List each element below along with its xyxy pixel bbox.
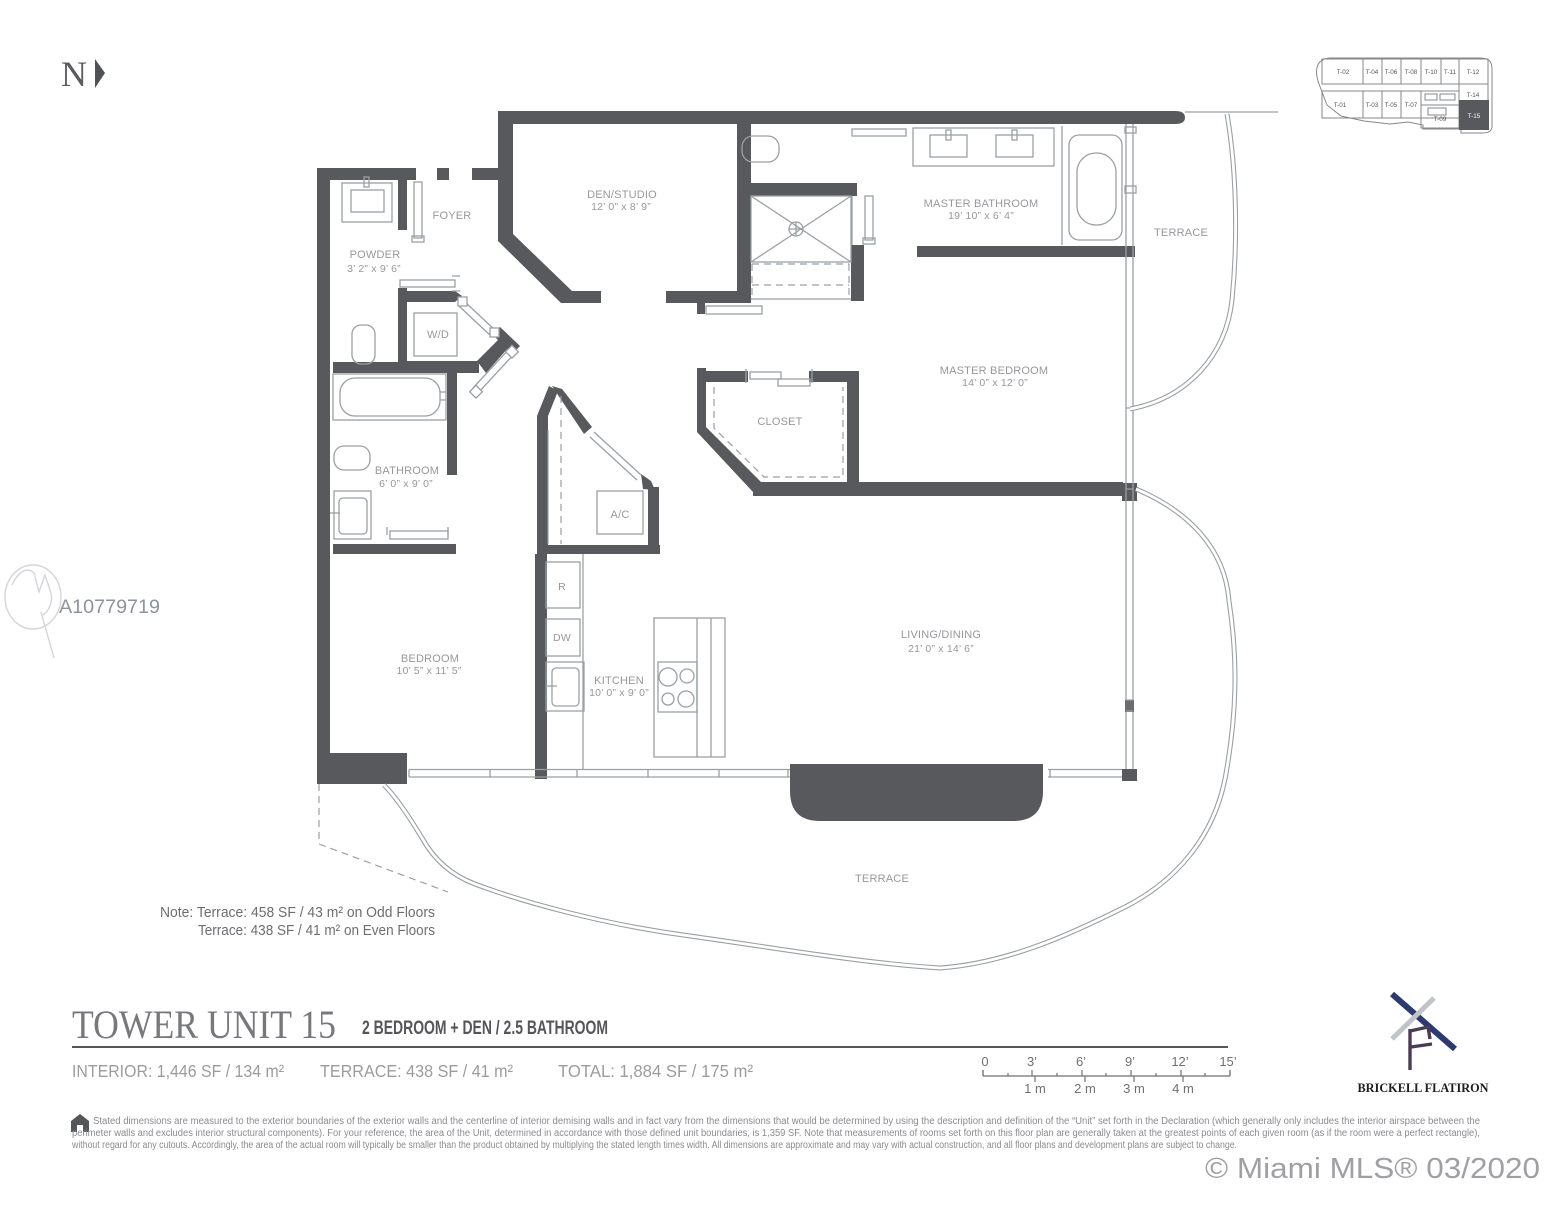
svg-text:T-04: T-04 xyxy=(1366,69,1379,76)
svg-text:T-07: T-07 xyxy=(1405,102,1418,109)
svg-text:T-03: T-03 xyxy=(1366,102,1379,109)
svg-text:6’ 0” x 9’ 0”: 6’ 0” x 9’ 0” xyxy=(379,478,433,490)
svg-text:T-08: T-08 xyxy=(1405,69,1418,76)
svg-text:3’: 3’ xyxy=(1027,1054,1037,1069)
svg-text:R: R xyxy=(558,581,566,593)
svg-text:T-02: T-02 xyxy=(1337,69,1350,76)
svg-text:3 m: 3 m xyxy=(1123,1081,1145,1096)
svg-text:T-15: T-15 xyxy=(1468,113,1481,120)
svg-text:T-01: T-01 xyxy=(1334,102,1347,109)
svg-text:15’: 15’ xyxy=(1219,1054,1236,1069)
svg-text:Stated dimensions are measured: Stated dimensions are measured to the ex… xyxy=(93,1116,1480,1127)
svg-text:6’: 6’ xyxy=(1076,1054,1086,1069)
svg-text:KITCHEN: KITCHEN xyxy=(594,675,644,687)
svg-text:A10779719: A10779719 xyxy=(59,597,160,618)
svg-text:TERRACE: TERRACE xyxy=(1154,227,1208,239)
svg-text:Terrace: 438 SF / 41 m² on Ev: Terrace: 438 SF / 41 m² on Even Floors xyxy=(198,922,435,939)
svg-text:TOTAL: 1,884 SF / 175 m²: TOTAL: 1,884 SF / 175 m² xyxy=(558,1061,753,1081)
svg-text:19’ 10” x 6’ 4”: 19’ 10” x 6’ 4” xyxy=(948,210,1014,222)
svg-text:14’ 0” x 12’ 0”: 14’ 0” x 12’ 0” xyxy=(962,377,1028,389)
svg-text:INTERIOR: 1,446 SF / 134 m²: INTERIOR: 1,446 SF / 134 m² xyxy=(72,1061,284,1081)
svg-text:T-09: T-09 xyxy=(1434,116,1447,123)
svg-text:T-05: T-05 xyxy=(1385,102,1398,109)
svg-text:BRICKELL FLATIRON: BRICKELL FLATIRON xyxy=(1358,1080,1490,1095)
svg-text:© Miami MLS® 03/2020: © Miami MLS® 03/2020 xyxy=(1205,1153,1540,1185)
svg-text:12’: 12’ xyxy=(1171,1054,1188,1069)
svg-text:A/C: A/C xyxy=(611,509,630,521)
svg-text:DEN/STUDIO: DEN/STUDIO xyxy=(587,189,657,201)
svg-text:9’: 9’ xyxy=(1125,1054,1135,1069)
svg-text:LIVING/DINING: LIVING/DINING xyxy=(901,629,981,641)
svg-text:MASTER BEDROOM: MASTER BEDROOM xyxy=(940,365,1049,377)
svg-text:3’ 2” x 9’ 6”: 3’ 2” x 9’ 6” xyxy=(347,263,401,275)
svg-text:BEDROOM: BEDROOM xyxy=(401,653,459,665)
svg-text:BATHROOM: BATHROOM xyxy=(375,465,439,477)
svg-text:1 m: 1 m xyxy=(1024,1081,1046,1096)
svg-text:21’ 0” x 14’ 6”: 21’ 0” x 14’ 6” xyxy=(908,643,974,655)
svg-text:POWDER: POWDER xyxy=(350,249,401,261)
svg-text:FOYER: FOYER xyxy=(433,210,472,222)
svg-text:CLOSET: CLOSET xyxy=(757,416,802,428)
svg-text:10’ 0” x 9’ 0”: 10’ 0” x 9’ 0” xyxy=(589,687,649,699)
svg-text:T-11: T-11 xyxy=(1444,69,1457,76)
svg-text:T-14: T-14 xyxy=(1467,92,1480,99)
svg-text:12’ 0” x 8’ 9”: 12’ 0” x 8’ 9” xyxy=(591,201,651,213)
svg-text:TERRACE: 438 SF / 41 m²: TERRACE: 438 SF / 41 m² xyxy=(320,1061,513,1081)
svg-text:TERRACE: TERRACE xyxy=(855,873,909,885)
svg-text:T-12: T-12 xyxy=(1467,69,1480,76)
svg-text:T-06: T-06 xyxy=(1385,69,1398,76)
svg-text:0: 0 xyxy=(981,1054,988,1069)
svg-text:perimeter walls and excludes i: perimeter walls and excludes interior st… xyxy=(72,1128,1480,1139)
svg-text:2 m: 2 m xyxy=(1074,1081,1096,1096)
svg-text:Note: Terrace: 458 SF / 43 m²: Note: Terrace: 458 SF / 43 m² on Odd Flo… xyxy=(160,904,435,921)
svg-text:4 m: 4 m xyxy=(1172,1081,1194,1096)
svg-text:without regard for any cutouts: without regard for any cutouts. Accordin… xyxy=(71,1140,1237,1151)
svg-text:10’ 5” x 11’ 5”: 10’ 5” x 11’ 5” xyxy=(396,665,461,677)
svg-text:2 BEDROOM + DEN / 2.5 BATHROO: 2 BEDROOM + DEN / 2.5 BATHROOM xyxy=(362,1018,608,1039)
svg-text:MASTER BATHROOM: MASTER BATHROOM xyxy=(924,198,1039,210)
svg-text:T-10: T-10 xyxy=(1425,69,1438,76)
svg-text:TOWER UNIT 15: TOWER UNIT 15 xyxy=(72,1002,336,1047)
svg-text:N: N xyxy=(61,54,87,94)
svg-text:DW: DW xyxy=(553,632,571,644)
svg-text:W/D: W/D xyxy=(427,329,449,341)
